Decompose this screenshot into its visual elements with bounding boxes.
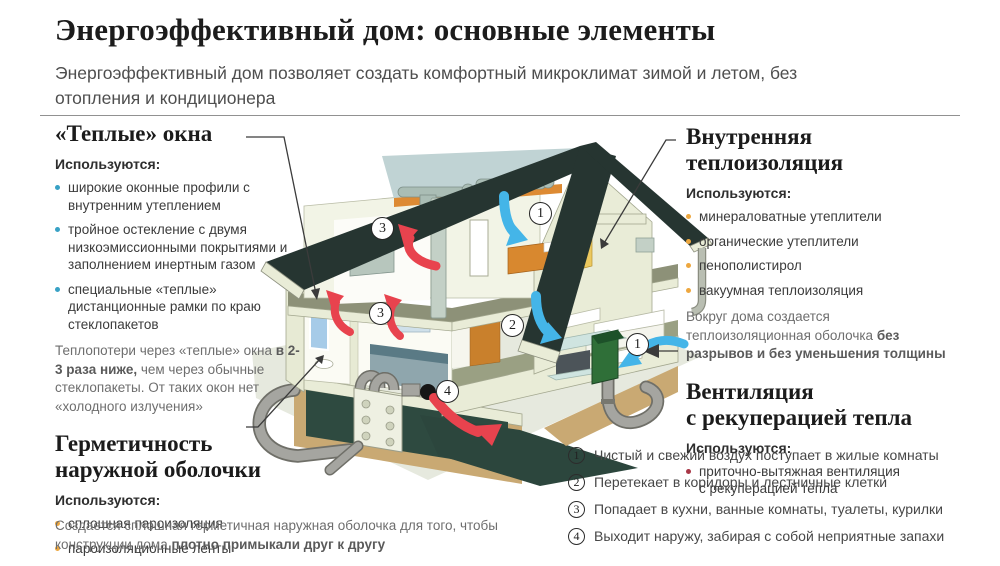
uses-label: Используются: <box>55 156 294 172</box>
pipe-clamp <box>601 399 615 404</box>
legend-item: 2Перетекает в коридоры и лестничные клет… <box>568 474 988 491</box>
bullet-dot-icon <box>686 239 691 244</box>
marker-number: 3 <box>377 306 384 322</box>
uses-label: Используются: <box>686 185 966 201</box>
legend-item: 1Чистый и свежий воздух поступает в жилы… <box>568 447 988 464</box>
list-item: специальные «теплые» дистанционные рамки… <box>55 281 294 334</box>
bullet-dot-icon <box>55 287 60 292</box>
bullet-dot-icon <box>55 185 60 190</box>
list-item-text: органические утеплители <box>699 233 859 251</box>
warm-windows-note: Теплопотери через «теплые» окна в 2-3 ра… <box>55 342 307 416</box>
list-item: тройное остекление с двумя низкоэмиссион… <box>55 221 294 274</box>
list-item: минераловатные утеплители <box>686 208 966 226</box>
hermetic-note: Создается сплошная герметичная наружная … <box>55 516 510 554</box>
list-item: широкие оконные профили с внутренним уте… <box>55 179 294 214</box>
marker-number: 1 <box>634 337 641 353</box>
bullet-dot-icon <box>55 227 60 232</box>
list-item-text: пенополистирол <box>699 257 802 275</box>
marker-attic-supply: 1 <box>529 202 552 225</box>
insulation-note: Вокруг дома создается теплоизоляционная … <box>686 308 954 364</box>
legend-item: 3Попадает в кухни, ванные комнаты, туале… <box>568 501 988 518</box>
page-subtitle: Энергоэффективный дом позволяет создать … <box>55 61 885 111</box>
left-column: «Теплые» окна Используются: широкие окон… <box>55 121 294 566</box>
bullet-dot-icon <box>686 214 691 219</box>
list-item: органические утеплители <box>686 233 966 251</box>
section-title-hermetic: Герметичностьнаружной оболочки <box>55 431 294 483</box>
section-title-warm-windows: «Теплые» окна <box>55 121 294 147</box>
marker-attic-exhaust: 3 <box>371 217 394 240</box>
bullet-dot-icon <box>686 263 691 268</box>
bullet-dot-icon <box>686 288 691 293</box>
marker-number: 2 <box>509 318 516 334</box>
insulation-list: минераловатные утеплители органические у… <box>686 208 966 299</box>
marker-number: 4 <box>444 384 451 400</box>
attic-door <box>470 220 488 276</box>
title-line: Внутренняя <box>686 124 966 150</box>
note-bold-text: плотно примыкали друг к другу <box>171 537 385 552</box>
header-divider <box>40 115 960 116</box>
marker-intake: 1 <box>626 333 649 356</box>
marker-number: 3 <box>379 221 386 237</box>
legend-number: 3 <box>568 501 585 518</box>
uses-label: Используются: <box>55 492 294 508</box>
legend-number: 1 <box>568 447 585 464</box>
section-title-insulation: Внутренняятеплоизоляция <box>686 124 966 176</box>
legend-number: 4 <box>568 528 585 545</box>
warm-windows-list: широкие оконные профили с внутренним уте… <box>55 179 294 333</box>
legend-text: Чистый и свежий воздух поступает в жилые… <box>594 447 939 463</box>
infographic-page: { "page": { "title": "Энергоэффективный … <box>0 0 1000 563</box>
list-item: пенополистирол <box>686 257 966 275</box>
list-item-text: специальные «теплые» дистанционные рамки… <box>68 281 294 334</box>
airflow-legend: 1Чистый и свежий воздух поступает в жилы… <box>568 447 988 555</box>
note-text: Вокруг дома создается теплоизоляционная … <box>686 309 877 343</box>
legend-number: 2 <box>568 474 585 491</box>
list-item-text: тройное остекление с двумя низкоэмиссион… <box>68 221 294 274</box>
list-item-text: широкие оконные профили с внутренним уте… <box>68 179 294 214</box>
marker-living-supply: 2 <box>501 314 524 337</box>
title-line: наружной оболочки <box>55 457 294 483</box>
list-item-text: вакуумная теплоизоляция <box>699 282 863 300</box>
legend-text: Выходит наружу, забирая с собой неприятн… <box>594 528 944 544</box>
section-title-ventilation: Вентиляцияс рекуперацией тепла <box>686 379 966 431</box>
list-item: вакуумная теплоизоляция <box>686 282 966 300</box>
title-line: Вентиляция <box>686 379 966 405</box>
note-text: Теплопотери через «теплые» окна <box>55 343 276 358</box>
list-item-text: минераловатные утеплители <box>699 208 882 226</box>
marker-number: 1 <box>537 206 544 222</box>
marker-floor-exhaust: 3 <box>369 302 392 325</box>
title-line: теплоизоляция <box>686 150 966 176</box>
legend-text: Перетекает в коридоры и лестничные клетк… <box>594 474 887 490</box>
title-line: с рекуперацией тепла <box>686 405 966 431</box>
page-title: Энергоэффективный дом: основные элементы <box>55 12 955 48</box>
legend-text: Попадает в кухни, ванные комнаты, туалет… <box>594 501 943 517</box>
legend-item: 4Выходит наружу, забирая с собой неприят… <box>568 528 988 545</box>
marker-exhaust-out: 4 <box>436 380 459 403</box>
title-line: Герметичность <box>55 431 294 457</box>
bathroom-window <box>310 314 328 350</box>
